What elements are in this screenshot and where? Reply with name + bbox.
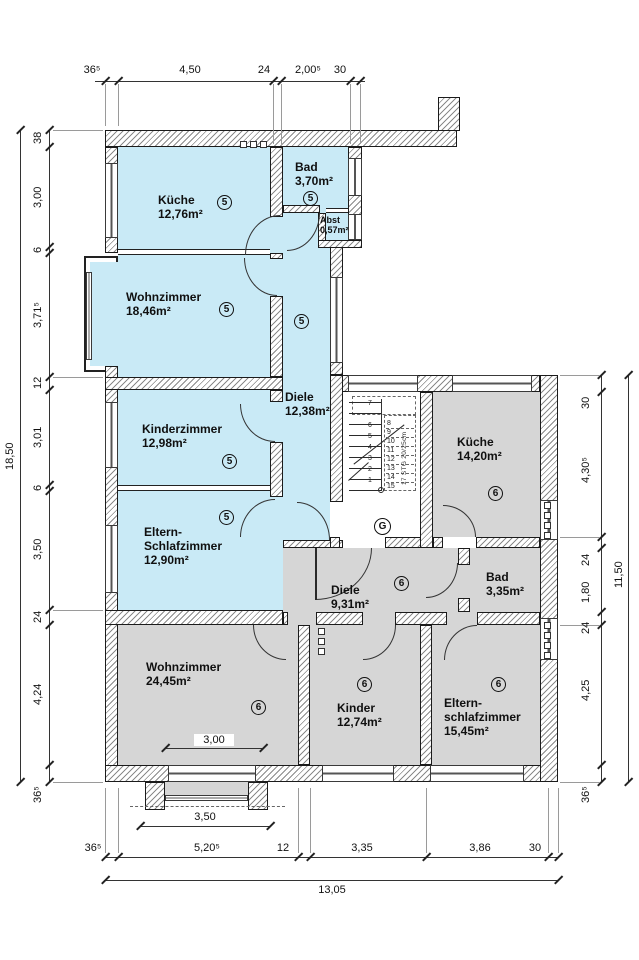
wall-kueche5-right (270, 147, 283, 217)
room-area: 14,20m² (457, 449, 502, 463)
dim-label: 6 (31, 463, 45, 513)
wall-abst5-bottom (318, 240, 362, 248)
wall-kueche6-left (420, 392, 433, 548)
stair-step-number: 12 (387, 456, 395, 464)
room-area: 0,57m² (320, 225, 349, 235)
radiator-eltern6 (544, 632, 551, 639)
wall-right (540, 375, 558, 782)
bay-window (86, 272, 92, 360)
window-stairwell-top (348, 375, 418, 392)
door-entrance6-panel (315, 548, 317, 600)
stair-step-number: 6 (368, 422, 372, 430)
stair-step-number: 13 (387, 465, 395, 473)
chimney (438, 97, 460, 131)
label-eltern5: Eltern- Schlafzimmer12,90m² (144, 525, 222, 567)
dim-label: 6 (31, 225, 45, 275)
dim-label: 3,50 (187, 811, 223, 823)
room-name: Abst (320, 215, 340, 225)
window-kueche5-left (105, 163, 118, 238)
stair-step-number: 14 (387, 474, 395, 482)
room-name: Kinderzimmer (142, 422, 222, 436)
dim-label-total: 11,50 (612, 550, 626, 600)
dim-line-bottom (105, 857, 558, 858)
dim-label: 36⁵ (72, 64, 112, 76)
label-kueche5: Küche12,76m² (158, 193, 203, 221)
unit5-circle-diele: 5 (294, 314, 309, 329)
radiator-kinder6 (318, 638, 325, 645)
dim-label: 3,00 (194, 734, 234, 746)
balcony-overhang-dashed (130, 806, 285, 807)
room-area: 9,31m² (331, 597, 369, 611)
stair-step-line (349, 435, 381, 436)
stair-step-line (349, 490, 381, 491)
dim-line-left (49, 130, 50, 782)
ext-line (558, 788, 559, 853)
unit5-circle-wohnzimmer: 5 (219, 302, 234, 317)
dim-label: 4,25 (579, 665, 593, 715)
room-area: 15,45m² (444, 724, 489, 738)
dim-label: 5,20⁵ (185, 842, 229, 854)
vent-abst5-top (326, 208, 348, 213)
dim-line-right-total (628, 375, 629, 782)
ext-line (118, 84, 119, 126)
radiator-kueche5 (240, 141, 247, 148)
ext-line (53, 130, 103, 131)
dim-label: 3,50 (31, 524, 45, 574)
ext-line (310, 788, 311, 853)
stair-step-line (349, 402, 381, 403)
stair-step-number: 11 (387, 447, 394, 455)
stair-step-number: 7 (368, 400, 372, 408)
radiator-eltern6 (544, 642, 551, 649)
dim-label: 24 (244, 64, 284, 76)
label-wohnzimmer6: Wohnzimmer24,45m² (146, 660, 221, 688)
dim-label: 24 (579, 603, 593, 653)
ext-line (53, 610, 103, 611)
window-abst5-right (348, 214, 362, 240)
room-name: Bad (295, 160, 318, 174)
dim-label: 30 (322, 64, 358, 76)
window-kinder6-bottom (322, 765, 394, 782)
dim-label: 36⁵ (579, 770, 593, 820)
ext-line (105, 84, 106, 126)
wall-mid-bottom-a (283, 612, 288, 625)
ext-line (360, 84, 361, 144)
radiator-kueche6 (544, 532, 551, 539)
room-area: 24,45m² (146, 674, 191, 688)
room-area: 18,46m² (126, 304, 171, 318)
stair-step-line (349, 413, 381, 414)
ext-line (53, 377, 103, 378)
dim-label: 3,35 (340, 842, 384, 854)
room-area: 3,35m² (486, 584, 524, 598)
dim-label: 3,71⁵ (31, 290, 45, 340)
stair-step-line (349, 457, 381, 458)
dim-label: 12 (265, 842, 301, 854)
dim-label: 36⁵ (31, 770, 45, 820)
dim-label: 4,24 (31, 669, 45, 719)
ext-line (560, 375, 600, 376)
unit5-circle-eltern: 5 (219, 510, 234, 525)
dim-line-bottom-total (105, 880, 558, 881)
unit5-circle-kueche: 5 (217, 195, 232, 210)
room-name: Eltern- Schlafzimmer (144, 525, 222, 553)
radiator-kueche6 (544, 512, 551, 519)
label-wohnzimmer5: Wohnzimmer18,46m² (126, 290, 201, 318)
ext-line (281, 84, 282, 144)
dim-label: 3,00 (31, 172, 45, 222)
dim-label: 24 (31, 592, 45, 642)
stair-center-rail (381, 399, 382, 491)
stair-step-number: 2 (368, 466, 372, 474)
dim-label-total: 18,50 (3, 431, 17, 481)
room-name: Diele (331, 583, 360, 597)
stairwell-label-circle: G (374, 518, 391, 535)
stair-step-number: 3 (368, 455, 372, 463)
radiator-kinder6 (318, 648, 325, 655)
wall-eltern5-bottom (105, 610, 283, 625)
room-name: Küche (158, 193, 195, 207)
label-bad5: Bad3,70m² (295, 160, 333, 188)
dim-line-left-total (20, 130, 21, 782)
stair-note: 17 STG 20/25cm (401, 418, 408, 498)
dim-line-balcony-inner (165, 748, 263, 749)
unit5-circle-bad: 5 (303, 191, 318, 206)
dim-label-total: 13,05 (310, 884, 354, 896)
wall-wohnzimmer5-right (270, 296, 283, 377)
radiator-kinder6 (318, 628, 325, 635)
wall-kueche6-bottom-b (476, 537, 540, 548)
dim-label: 3,01 (31, 412, 45, 462)
window-balcony-door (168, 765, 256, 782)
stair-step-number: 15 (387, 483, 395, 491)
dim-label: 38 (31, 113, 45, 163)
stair-step-number: 10 (387, 438, 395, 446)
label-bad6: Bad3,35m² (486, 570, 524, 598)
radiator-kueche5 (260, 141, 267, 148)
bay-window-floor (90, 262, 118, 366)
window-diele5-right (330, 277, 343, 363)
wall-kinder5-right-a (270, 390, 283, 402)
window-eltern5-left (105, 525, 118, 593)
window-bad5-right (348, 158, 362, 196)
wall-kueche6-bottom-a (433, 537, 443, 548)
dim-line-top (95, 81, 365, 82)
window-kueche6-top (452, 375, 532, 392)
unit5-circle-kinderzimmer: 5 (222, 454, 237, 469)
wall-stairwell-left (330, 375, 343, 502)
dim-label: 4,30⁵ (579, 445, 593, 495)
room-name: Diele (285, 390, 314, 404)
radiator-kueche6 (544, 522, 551, 529)
room-area: 3,70m² (295, 174, 333, 188)
stair-step-number: 9 (387, 429, 391, 437)
balcony-front-edge (165, 795, 248, 801)
stair-step-number: 1 (368, 477, 372, 485)
stair-step-line (349, 479, 381, 480)
stair-step-number: 5 (368, 433, 372, 441)
ext-line (426, 788, 427, 853)
wall-bad6-left-b (458, 598, 470, 612)
dim-label: 12 (31, 358, 45, 408)
dim-label: 4,50 (170, 64, 210, 76)
room-name: Bad (486, 570, 509, 584)
wall-mid-bottom-b (316, 612, 363, 625)
stair-step-line (349, 424, 381, 425)
unit6-circle-diele: 6 (394, 576, 409, 591)
wall-kinder6-right (420, 625, 432, 765)
label-abst5: Abst0,57m² (320, 215, 349, 235)
dim-line-balcony-outer (140, 826, 270, 827)
dim-label: 30 (579, 378, 593, 428)
room-name: Wohnzimmer (146, 660, 221, 674)
radiator-kueche5 (250, 141, 257, 148)
wall-kinder6-left (298, 625, 310, 765)
window-kinderzimmer5-left (105, 402, 118, 468)
label-kinder6: Kinder12,74m² (337, 701, 382, 729)
room-area: 12,76m² (158, 207, 203, 221)
room-name: Eltern- schlafzimmer (444, 696, 521, 724)
radiator-eltern6 (544, 652, 551, 659)
room-name: Küche (457, 435, 494, 449)
window-eltern6-bottom (430, 765, 524, 782)
partition-kinder5-eltern5 (118, 485, 270, 491)
dim-label: 30 (517, 842, 553, 854)
wall-kinder5-right-b (270, 442, 283, 497)
wall-left-lower (105, 612, 118, 782)
wall-bad5-bottom (283, 205, 320, 213)
dim-label: 3,86 (458, 842, 502, 854)
unit6-circle-kueche: 6 (488, 486, 503, 501)
ext-line (350, 84, 351, 144)
unit6-circle-eltern: 6 (491, 677, 506, 692)
stair-step-line (349, 468, 381, 469)
stair-step-number: 8 (387, 420, 391, 428)
room-area: 12,74m² (337, 715, 382, 729)
unit6-circle-kinder: 6 (357, 677, 372, 692)
room-area: 12,90m² (144, 553, 189, 567)
floor-plan: 1 2 3 4 5 6 7 8 9 10 11 12 13 14 15 17 S… (0, 0, 639, 960)
wall-mid-bottom-d (477, 612, 540, 625)
ext-line (53, 782, 103, 783)
dim-label: 36⁵ (73, 842, 113, 854)
dim-line-right (601, 375, 602, 782)
label-kueche6: Küche14,20m² (457, 435, 502, 463)
unit6-circle-wohnzimmer: 6 (251, 700, 266, 715)
ext-line (118, 788, 119, 853)
label-kinderzimmer5: Kinderzimmer12,98m² (142, 422, 222, 450)
stair-step-number: 4 (368, 444, 372, 452)
wall-stairwell-bottom-a (330, 537, 340, 548)
room-area: 12,98m² (142, 436, 187, 450)
room-area: 12,38m² (285, 404, 330, 418)
radiator-kueche6 (544, 502, 551, 509)
wall-bad6-left-a (458, 548, 470, 565)
label-diele5: Diele12,38m² (285, 390, 330, 418)
label-eltern6: Eltern- schlafzimmer15,45m² (444, 696, 521, 738)
wall-wohn5-kinder5 (105, 377, 283, 390)
wall-mid-bottom-c (395, 612, 447, 625)
room-name: Wohnzimmer (126, 290, 201, 304)
radiator-eltern6 (544, 622, 551, 629)
ext-line (273, 84, 274, 144)
label-diele6: Diele9,31m² (331, 583, 369, 611)
room-name: Kinder (337, 701, 375, 715)
